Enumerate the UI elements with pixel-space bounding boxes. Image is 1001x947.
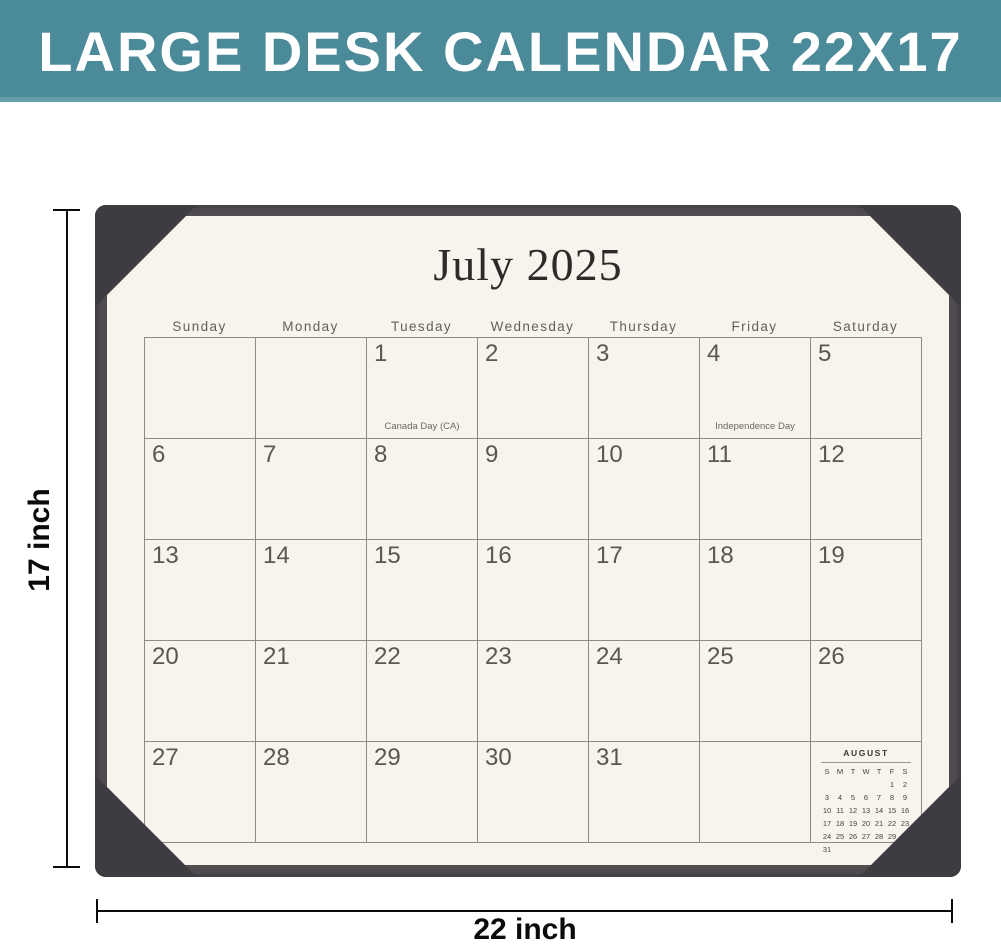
date-number: 23 bbox=[485, 643, 512, 671]
mini-date: 17 bbox=[821, 817, 834, 830]
day-cell: 4Independence Day bbox=[700, 338, 811, 439]
day-cell: 3 bbox=[589, 338, 700, 439]
day-cell: 28 bbox=[256, 742, 367, 843]
mini-date: 31 bbox=[821, 843, 834, 856]
mini-month-rule bbox=[821, 762, 911, 763]
mini-weekday-initial: M bbox=[834, 765, 847, 778]
day-cell: 12 bbox=[811, 439, 922, 540]
day-cell: 26 bbox=[811, 641, 922, 742]
mini-date bbox=[847, 778, 860, 791]
mini-date: 10 bbox=[821, 804, 834, 817]
weekday-header: Monday bbox=[255, 319, 366, 334]
date-number: 1 bbox=[374, 340, 387, 368]
date-number: 30 bbox=[485, 744, 512, 772]
date-number: 5 bbox=[818, 340, 831, 368]
width-dimension-line bbox=[97, 910, 953, 912]
mini-month-header-row: SMTWTFS bbox=[821, 765, 912, 778]
date-number: 31 bbox=[596, 744, 623, 772]
mini-date: 19 bbox=[847, 817, 860, 830]
day-cell: 17 bbox=[589, 540, 700, 641]
mini-date: 27 bbox=[860, 830, 873, 843]
day-cell bbox=[700, 742, 811, 843]
date-number: 28 bbox=[263, 744, 290, 772]
date-number: 18 bbox=[707, 542, 734, 570]
mini-month-week-row: 12 bbox=[821, 778, 912, 791]
day-cell: 29 bbox=[367, 742, 478, 843]
day-cell: 31 bbox=[589, 742, 700, 843]
day-cell bbox=[256, 338, 367, 439]
mini-date: 15 bbox=[886, 804, 899, 817]
date-number: 22 bbox=[374, 643, 401, 671]
mini-date bbox=[821, 778, 834, 791]
mini-date: 7 bbox=[873, 791, 886, 804]
weekday-header: Wednesday bbox=[477, 319, 588, 334]
weekday-header: Sunday bbox=[144, 319, 255, 334]
date-number: 24 bbox=[596, 643, 623, 671]
day-cell: 8 bbox=[367, 439, 478, 540]
calendar-page: July 2025 SundayMondayTuesdayWednesdayTh… bbox=[107, 216, 949, 865]
mini-date: 9 bbox=[899, 791, 912, 804]
day-cell: 16 bbox=[478, 540, 589, 641]
mini-date bbox=[834, 778, 847, 791]
mini-date: 11 bbox=[834, 804, 847, 817]
date-number: 16 bbox=[485, 542, 512, 570]
day-cell: 2 bbox=[478, 338, 589, 439]
date-number: 11 bbox=[707, 441, 732, 469]
mini-date: 13 bbox=[860, 804, 873, 817]
day-cell: 14 bbox=[256, 540, 367, 641]
mini-date: 8 bbox=[886, 791, 899, 804]
date-number: 21 bbox=[263, 643, 290, 671]
mini-date: 22 bbox=[886, 817, 899, 830]
width-dimension-label: 22 inch bbox=[97, 913, 953, 947]
mini-date: 16 bbox=[899, 804, 912, 817]
day-cell: 22 bbox=[367, 641, 478, 742]
day-cell: 9 bbox=[478, 439, 589, 540]
mini-date: 4 bbox=[834, 791, 847, 804]
day-cell: 1Canada Day (CA) bbox=[367, 338, 478, 439]
weekday-header: Thursday bbox=[588, 319, 699, 334]
holiday-label: Independence Day bbox=[700, 421, 810, 432]
mini-weekday-initial: S bbox=[821, 765, 834, 778]
date-number: 29 bbox=[374, 744, 401, 772]
mini-month-title: AUGUST bbox=[811, 748, 921, 758]
mini-weekday-initial: S bbox=[899, 765, 912, 778]
height-dimension-line bbox=[66, 210, 68, 868]
day-cell: 19 bbox=[811, 540, 922, 641]
mini-date: 2 bbox=[899, 778, 912, 791]
day-cell: 21 bbox=[256, 641, 367, 742]
date-number: 25 bbox=[707, 643, 734, 671]
mini-date: 21 bbox=[873, 817, 886, 830]
date-number: 17 bbox=[596, 542, 623, 570]
weekday-header: Saturday bbox=[810, 319, 921, 334]
mini-date: 1 bbox=[886, 778, 899, 791]
date-number: 14 bbox=[263, 542, 290, 570]
day-cell: 23 bbox=[478, 641, 589, 742]
height-dimension-cap-bottom bbox=[53, 866, 80, 868]
product-image: LARGE DESK CALENDAR 22X17 17 inch 22 inc… bbox=[0, 0, 1001, 947]
date-number: 15 bbox=[374, 542, 401, 570]
day-cell bbox=[145, 338, 256, 439]
month-title: July 2025 bbox=[107, 238, 949, 291]
mini-weekday-initial: W bbox=[860, 765, 873, 778]
day-cell: 7 bbox=[256, 439, 367, 540]
weekday-header: Tuesday bbox=[366, 319, 477, 334]
date-number: 20 bbox=[152, 643, 179, 671]
banner: LARGE DESK CALENDAR 22X17 bbox=[0, 0, 1001, 102]
day-cell: 20 bbox=[145, 641, 256, 742]
mini-date bbox=[847, 843, 860, 856]
mini-date bbox=[873, 778, 886, 791]
height-dimension-label: 17 inch bbox=[23, 480, 57, 600]
day-cell: 5 bbox=[811, 338, 922, 439]
day-cell: 10 bbox=[589, 439, 700, 540]
mini-date: 5 bbox=[847, 791, 860, 804]
mini-date bbox=[860, 778, 873, 791]
mini-date: 25 bbox=[834, 830, 847, 843]
date-number: 26 bbox=[818, 643, 845, 671]
mini-date: 26 bbox=[847, 830, 860, 843]
date-number: 19 bbox=[818, 542, 845, 570]
mini-date: 20 bbox=[860, 817, 873, 830]
mini-date: 12 bbox=[847, 804, 860, 817]
day-cell: 6 bbox=[145, 439, 256, 540]
calendar-grid: 1Canada Day (CA)234Independence Day56789… bbox=[144, 337, 922, 843]
day-cell: 24 bbox=[589, 641, 700, 742]
mini-weekday-initial: F bbox=[886, 765, 899, 778]
date-number: 9 bbox=[485, 441, 498, 469]
date-number: 8 bbox=[374, 441, 387, 469]
day-cell: 11 bbox=[700, 439, 811, 540]
mini-month-week-row: 17181920212223 bbox=[821, 817, 912, 830]
mini-date: 3 bbox=[821, 791, 834, 804]
height-dimension-cap-top bbox=[53, 209, 80, 211]
date-number: 10 bbox=[596, 441, 623, 469]
date-number: 7 bbox=[263, 441, 276, 469]
holiday-label: Canada Day (CA) bbox=[367, 421, 477, 432]
mini-date bbox=[860, 843, 873, 856]
weekday-header-row: SundayMondayTuesdayWednesdayThursdayFrid… bbox=[144, 319, 921, 334]
date-number: 2 bbox=[485, 340, 498, 368]
mini-date: 6 bbox=[860, 791, 873, 804]
date-number: 13 bbox=[152, 542, 179, 570]
mini-weekday-initial: T bbox=[873, 765, 886, 778]
day-cell: 25 bbox=[700, 641, 811, 742]
day-cell: 30 bbox=[478, 742, 589, 843]
date-number: 12 bbox=[818, 441, 845, 469]
date-number: 3 bbox=[596, 340, 609, 368]
day-cell: AUGUSTSMTWTFS123456789101112131415161718… bbox=[811, 742, 922, 843]
date-number: 6 bbox=[152, 441, 165, 469]
mini-month-week-row: 3456789 bbox=[821, 791, 912, 804]
date-number: 4 bbox=[707, 340, 720, 368]
banner-title: LARGE DESK CALENDAR 22X17 bbox=[38, 19, 962, 84]
mini-date: 28 bbox=[873, 830, 886, 843]
day-cell: 27 bbox=[145, 742, 256, 843]
mini-weekday-initial: T bbox=[847, 765, 860, 778]
day-cell: 15 bbox=[367, 540, 478, 641]
day-cell: 13 bbox=[145, 540, 256, 641]
mini-date: 24 bbox=[821, 830, 834, 843]
desk-pad-mat: July 2025 SundayMondayTuesdayWednesdayTh… bbox=[95, 205, 961, 877]
date-number: 27 bbox=[152, 744, 179, 772]
weekday-header: Friday bbox=[699, 319, 810, 334]
mini-date: 14 bbox=[873, 804, 886, 817]
mini-month-week-row: 10111213141516 bbox=[821, 804, 912, 817]
mini-date bbox=[834, 843, 847, 856]
day-cell: 18 bbox=[700, 540, 811, 641]
mini-date: 18 bbox=[834, 817, 847, 830]
